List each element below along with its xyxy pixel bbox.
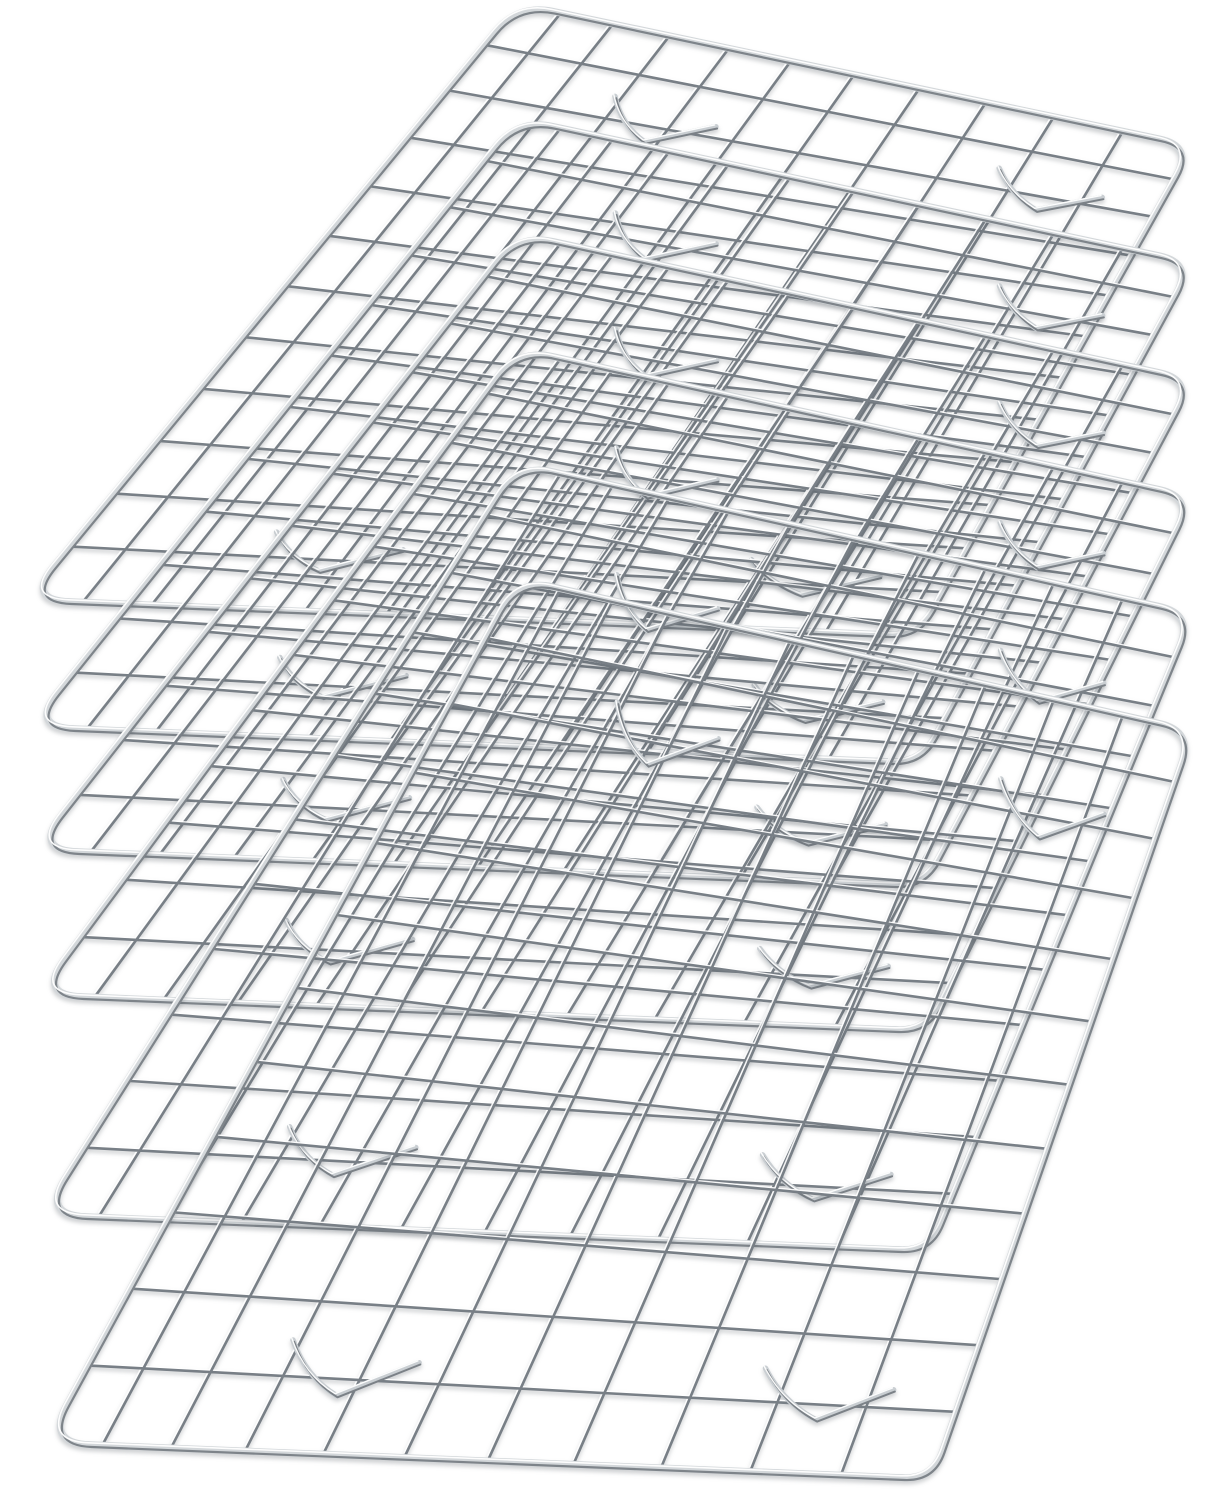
cooling-racks-product-image	[0, 0, 1210, 1500]
product-photo-stage	[0, 0, 1210, 1500]
